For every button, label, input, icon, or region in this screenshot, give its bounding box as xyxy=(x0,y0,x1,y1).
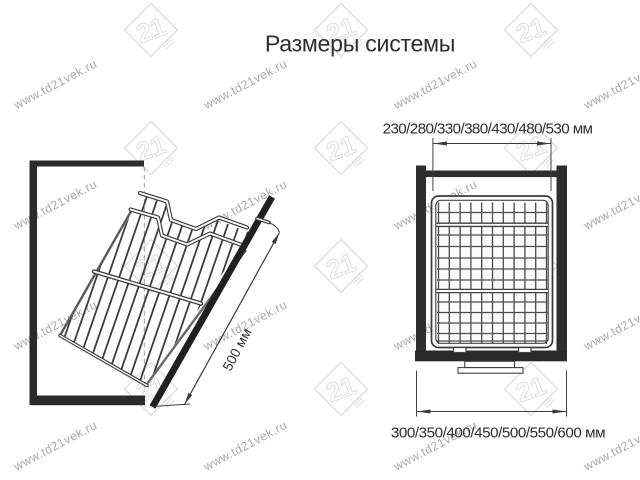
svg-text:www.td21vek.ru: www.td21vek.ru xyxy=(200,56,289,112)
svg-text:www.td21vek.ru: www.td21vek.ru xyxy=(10,418,99,474)
svg-text:Размеры системы: Размеры системы xyxy=(265,31,455,57)
svg-text:www.td21vek.ru: www.td21vek.ru xyxy=(10,177,99,233)
svg-text:300/350/400/450/500/550/600 мм: 300/350/400/450/500/550/600 мм xyxy=(391,425,605,442)
svg-text:www.td21vek.ru: www.td21vek.ru xyxy=(580,56,640,112)
svg-text:www.td21vek.ru: www.td21vek.ru xyxy=(200,418,289,474)
svg-text:www.td21vek.ru: www.td21vek.ru xyxy=(580,177,640,233)
svg-text:www.td21vek.ru: www.td21vek.ru xyxy=(10,56,99,112)
svg-text:www.td21vek.ru: www.td21vek.ru xyxy=(580,297,640,353)
svg-text:www.td21vek.ru: www.td21vek.ru xyxy=(390,56,479,112)
svg-text:230/280/330/380/430/480/530 мм: 230/280/330/380/430/480/530 мм xyxy=(383,121,593,138)
